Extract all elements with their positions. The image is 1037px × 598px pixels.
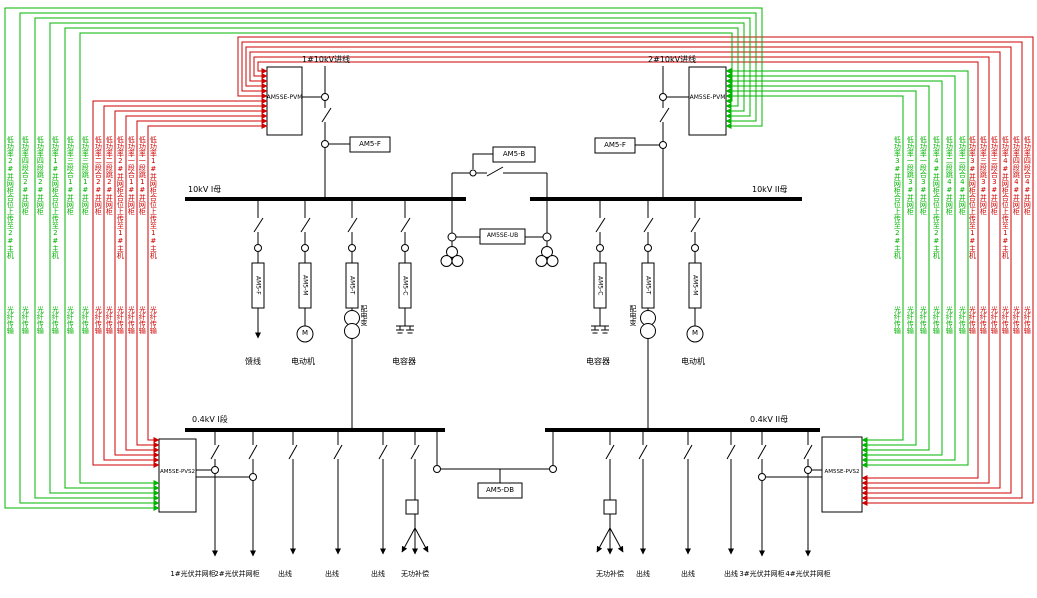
pv3-cabinet-label: 3#光伏并网柜 bbox=[736, 571, 788, 578]
var-comp-fuse-2 bbox=[604, 500, 616, 514]
signal-label: 低功率二段合2#并网柜 bbox=[94, 136, 101, 215]
fiber-label: 光纤传输 bbox=[979, 306, 986, 334]
fiber-label: 光纤传输 bbox=[36, 306, 43, 334]
pv4-cabinet-label: 4#光伏并网柜 bbox=[782, 571, 834, 578]
signal-label: 低功率二段跳2#并网柜 bbox=[105, 136, 112, 215]
relay-c2-label: AM5-C bbox=[594, 264, 605, 307]
signal-label: 低功率三段跳3#并网柜 bbox=[979, 136, 986, 215]
var-comp-label: 无功补偿 bbox=[387, 571, 443, 578]
fiber-label: 光纤传输 bbox=[149, 306, 156, 334]
fiber-label: 光纤传输 bbox=[105, 306, 112, 334]
signal-label: 低功率1#并网柜合位上传至1#主机 bbox=[149, 136, 156, 259]
bus-10kv-2 bbox=[530, 197, 802, 201]
fiber-label: 光纤传输 bbox=[932, 306, 939, 334]
motor-letter: M bbox=[300, 330, 310, 337]
transformer-load-label: 配电变 bbox=[360, 305, 367, 326]
relay-c-label: AM5-C bbox=[399, 264, 410, 307]
signal-label: 低功率4#并网柜合位上传至1#主机 bbox=[1001, 136, 1008, 259]
signal-label: 低功率三段合1#并网柜 bbox=[66, 136, 73, 215]
signal-label: 低功率三段跳1#并网柜 bbox=[81, 136, 88, 215]
pvs2-1-label: AM5SE-PVS2 bbox=[158, 470, 197, 476]
relay-t2-label: AM5-T bbox=[642, 264, 653, 307]
signal-label: 低功率一段合3#并网柜 bbox=[919, 136, 926, 215]
fiber-label: 光纤传输 bbox=[945, 306, 952, 334]
signal-label: 低功率四段跳2#并网柜 bbox=[36, 136, 43, 215]
signal-label: 低功率四段跳4#并网柜 bbox=[1012, 136, 1019, 215]
pv2-cabinet-label: 2#光伏并网柜 bbox=[211, 571, 263, 578]
outgoing-line-label: 出线 bbox=[674, 571, 702, 578]
signal-label: 低功率2#并网柜合位上传至2#主机 bbox=[6, 136, 13, 259]
fiber-label: 光纤传输 bbox=[138, 306, 145, 334]
bus-10kv-1 bbox=[185, 197, 466, 201]
outgoing-line-label: 出线 bbox=[318, 571, 346, 578]
fiber-label: 光纤传输 bbox=[906, 306, 913, 334]
fiber-label: 光纤传输 bbox=[968, 306, 975, 334]
fiber-label: 光纤传输 bbox=[127, 306, 134, 334]
fiber-label: 光纤传输 bbox=[94, 306, 101, 334]
signal-label: 低功率3#并网柜合位上传至1#主机 bbox=[968, 136, 975, 259]
fiber-label: 光纤传输 bbox=[919, 306, 926, 334]
bus-10kv-2-label: 10kV II母 bbox=[752, 186, 788, 194]
fiber-label: 光纤传输 bbox=[990, 306, 997, 334]
fiber-label: 光纤传输 bbox=[1012, 306, 1019, 334]
one-line-diagram: 1#10kV进线 2#10kV进线 AM5SE-PVM AM5SE-PVM AM… bbox=[0, 0, 1037, 598]
signal-label: 低功率一段跳3#并网柜 bbox=[906, 136, 913, 215]
am5se-ub-label: AM5SE-UB bbox=[480, 233, 525, 239]
bus-04kv-2 bbox=[545, 428, 820, 432]
fiber-label: 光纤传输 bbox=[51, 306, 58, 334]
pvs2-1-box bbox=[159, 439, 196, 512]
relay-m2-label: AM5-M bbox=[689, 264, 700, 307]
outgoing-line-label: 出线 bbox=[629, 571, 657, 578]
fiber-label: 光纤传输 bbox=[1001, 306, 1008, 334]
outgoing-line-label: 出线 bbox=[271, 571, 299, 578]
var-comp-fuse bbox=[406, 500, 418, 514]
fiber-label: 光纤传输 bbox=[1023, 306, 1030, 334]
motor-letter-2: M bbox=[690, 330, 700, 337]
am5f-2-label: AM5-F bbox=[595, 142, 635, 149]
bus-04kv-1 bbox=[185, 428, 445, 432]
signal-label: 低功率一段跳1#并网柜 bbox=[138, 136, 145, 215]
fiber-label: 光纤传输 bbox=[958, 306, 965, 334]
fiber-label: 光纤传输 bbox=[66, 306, 73, 334]
feeder-load-label: 馈线 bbox=[245, 358, 261, 366]
signal-label: 低功率一段合1#并网柜 bbox=[127, 136, 134, 215]
signal-label: 低功率二段跳4#并网柜 bbox=[945, 136, 952, 215]
signal-label: 低功率3#并网柜合位上传至2#主机 bbox=[893, 136, 900, 259]
capacitor-load-label: 电容器 bbox=[392, 358, 416, 366]
device-boxes bbox=[159, 67, 862, 514]
signal-label: 低功率四段合2#并网柜 bbox=[21, 136, 28, 215]
capacitor-load-label-2: 电容器 bbox=[586, 358, 610, 366]
signal-label: 低功率二段合4#并网柜 bbox=[958, 136, 965, 215]
am5db-label: AM5-DB bbox=[478, 487, 522, 494]
pvs2-2-label: AM5SE-PVS2 bbox=[821, 470, 863, 476]
pvm-1-label: AM5SE-PVM bbox=[266, 95, 303, 101]
am5f-1-label: AM5-F bbox=[350, 141, 390, 148]
signal-label: 低功率2#并网柜合位上传至1#主机 bbox=[116, 136, 123, 259]
signal-label: 低功率四段合4#并网柜 bbox=[1023, 136, 1030, 215]
pvm-2-box bbox=[689, 67, 726, 135]
signal-label: 低功率三段合3#并网柜 bbox=[990, 136, 997, 215]
motor-load-label-2: 电动机 bbox=[681, 358, 705, 366]
transformer-load-label-2: 配电变 bbox=[629, 305, 636, 326]
signal-label: 低功率4#并网柜合位上传至2#主机 bbox=[932, 136, 939, 259]
red-fiber-wires bbox=[93, 37, 1033, 503]
relay-m-label: AM5-M bbox=[299, 264, 310, 307]
diagram-canvas bbox=[0, 0, 1037, 598]
fiber-label: 光纤传输 bbox=[6, 306, 13, 334]
fiber-label: 光纤传输 bbox=[81, 306, 88, 334]
fiber-label: 光纤传输 bbox=[21, 306, 28, 334]
signal-label: 低功率1#并网柜合位上传至2#主机 bbox=[51, 136, 58, 259]
fiber-label: 光纤传输 bbox=[893, 306, 900, 334]
bus-04kv-2-label: 0.4kV II母 bbox=[750, 416, 788, 424]
fiber-label: 光纤传输 bbox=[116, 306, 123, 334]
bus-10kv-1-label: 10kV I母 bbox=[188, 186, 221, 194]
relay-f-label: AM5-F bbox=[252, 264, 263, 307]
incoming-2-label: 2#10kV进线 bbox=[648, 56, 696, 64]
am5b-label: AM5-B bbox=[493, 151, 535, 158]
bus-04kv-1-label: 0.4kV I段 bbox=[192, 416, 228, 424]
motor-load-label: 电动机 bbox=[291, 358, 315, 366]
relay-t-label: AM5-T bbox=[346, 264, 357, 307]
pvm-2-label: AM5SE-PVM bbox=[689, 95, 726, 101]
incoming-1-label: 1#10kV进线 bbox=[302, 56, 350, 64]
pvm-1-box bbox=[267, 67, 302, 135]
